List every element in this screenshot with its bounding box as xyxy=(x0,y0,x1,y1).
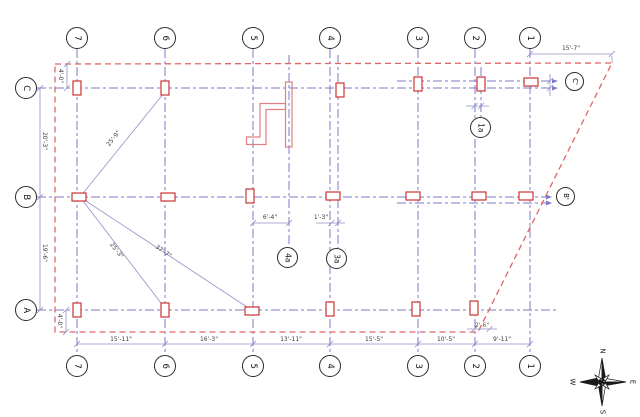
grid-bubble-7-bottom: 7 xyxy=(66,355,88,377)
dim-bottom-7-6: 15'-11" xyxy=(110,337,132,343)
grid-bubble-6-top: 6 xyxy=(154,27,176,49)
grid-bubble-2-bottom: 2 xyxy=(464,355,486,377)
floor-plan-sheet: 7 6 5 4 3 2 1 7 6 5 4 3 2 1 C B A C' B' … xyxy=(0,0,640,417)
compass-east-label: E xyxy=(629,380,636,384)
grid-bubble-B-prime: B' xyxy=(556,187,575,206)
grid-bubble-7-top: 7 xyxy=(66,27,88,49)
dim-left-bottom-offset: 4'-0" xyxy=(56,314,62,328)
dim-grid4-3a: 1'-3" xyxy=(314,215,328,221)
grid-bubble-1-top: 1 xyxy=(519,27,541,49)
grid-bubble-4-bottom: 4 xyxy=(319,355,341,377)
dim-bottom-5-4: 13'-11" xyxy=(280,337,302,343)
dim-bottom-4-3: 15'-5" xyxy=(365,337,383,343)
plan-linework xyxy=(0,0,640,417)
grid-bubble-3-top: 3 xyxy=(407,27,429,49)
dim-grid2-edge: 2'-6" xyxy=(475,323,489,329)
dim-bottom-2-1: 9'-11" xyxy=(493,337,511,343)
grid-bubble-1a: 1a xyxy=(470,117,491,138)
grid-bubble-3-bottom: 3 xyxy=(407,355,429,377)
grid-bubble-4-top: 4 xyxy=(319,27,341,49)
grid-bubble-C-prime: C' xyxy=(565,72,584,91)
compass-west-label: W xyxy=(569,379,576,386)
grid-bubble-6-bottom: 6 xyxy=(154,355,176,377)
compass-south-label: S xyxy=(599,410,606,414)
dim-top-right: 15'-7" xyxy=(562,46,580,52)
dim-stair-width: 6'-4" xyxy=(263,215,277,221)
right-ref-arrows xyxy=(546,79,558,206)
grid-bubble-1-bottom: 1 xyxy=(519,355,541,377)
dim-left-b-a: 19'-6" xyxy=(41,244,47,262)
grid-bubble-C: C xyxy=(15,77,37,99)
dim-bottom-6-5: 16'-3" xyxy=(200,337,218,343)
dim-bottom-3-2: 10'-5" xyxy=(437,337,455,343)
grid-bubble-3a: 3a xyxy=(326,248,347,269)
grid-bubble-A: A xyxy=(15,299,37,321)
grid-bubble-5-top: 5 xyxy=(242,27,264,49)
grid-bubble-5-bottom: 5 xyxy=(242,355,264,377)
grid-bubble-B: B xyxy=(15,186,37,208)
dim-left-top-offset: 4'-0" xyxy=(57,69,63,83)
compass-north-label: N xyxy=(599,348,606,353)
grid-bubble-4a: 4a xyxy=(277,247,298,268)
compass-rose xyxy=(580,358,626,406)
dim-left-c-b: 20'-3" xyxy=(41,132,47,150)
grid-bubble-2-top: 2 xyxy=(464,27,486,49)
